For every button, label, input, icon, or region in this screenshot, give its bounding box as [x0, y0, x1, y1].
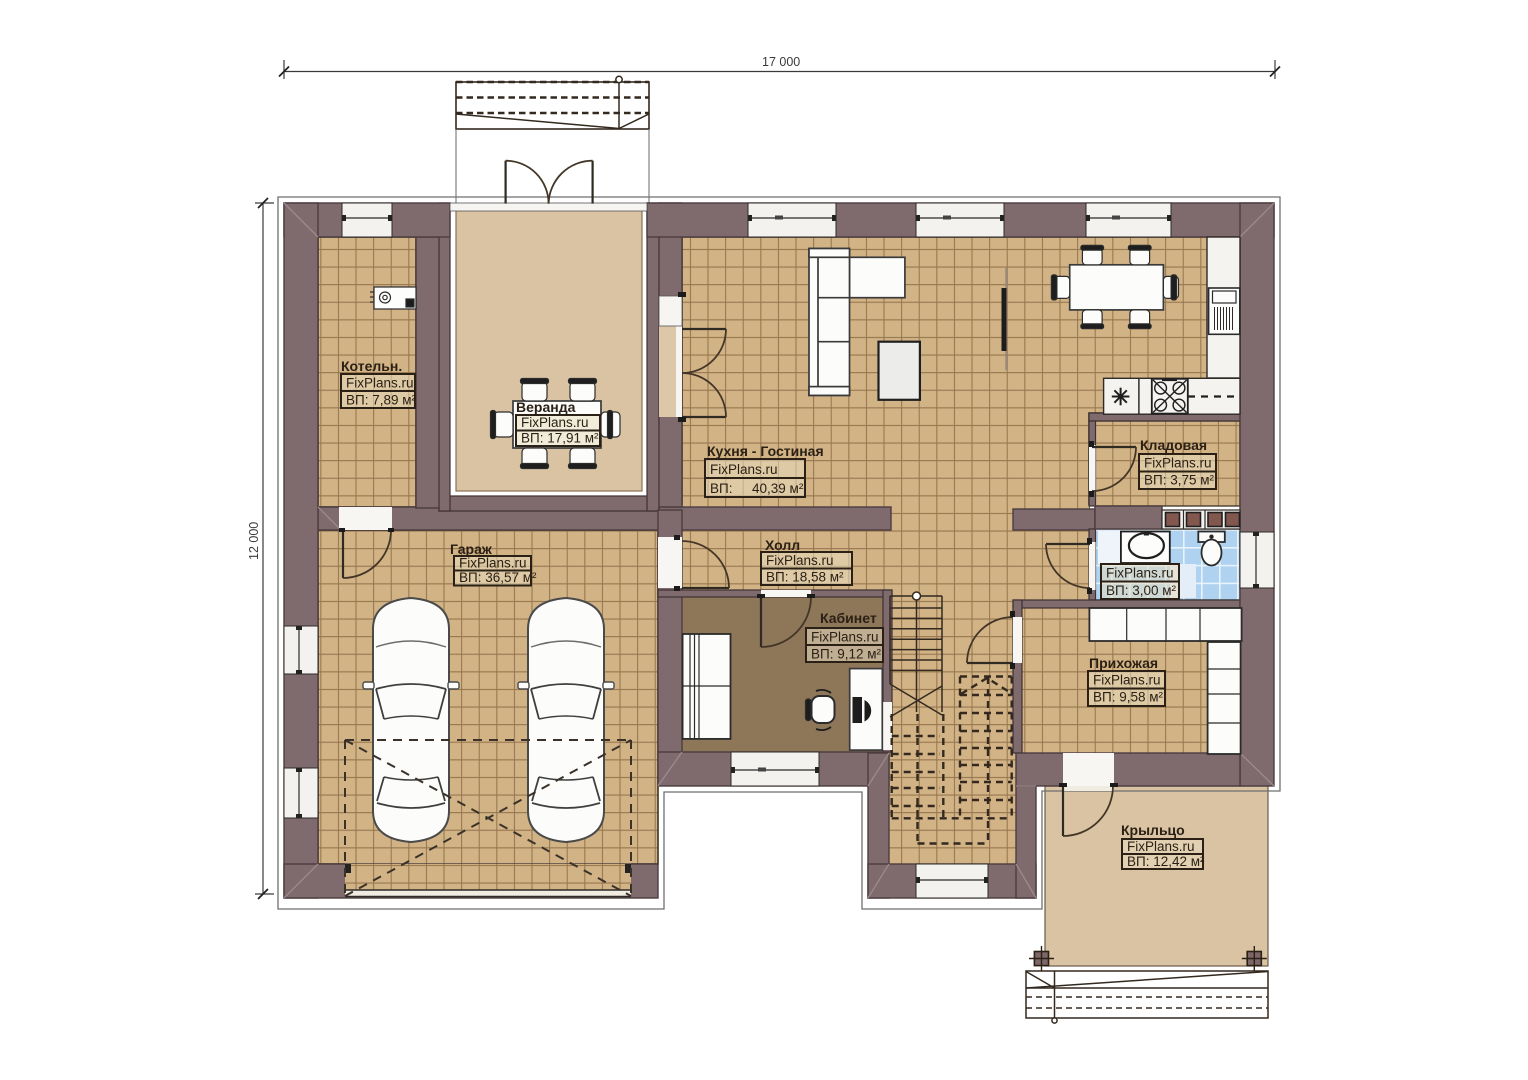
svg-text:Котельн.: Котельн. — [341, 358, 402, 374]
svg-text:FixPlans.ru: FixPlans.ru — [346, 376, 414, 391]
svg-text:Крыльцо: Крыльцо — [1121, 822, 1185, 838]
svg-text:ВП: 3,75 м²: ВП: 3,75 м² — [1144, 473, 1215, 488]
svg-text:ВП: 3,00 м²: ВП: 3,00 м² — [1106, 583, 1177, 598]
svg-text:Холл: Холл — [765, 537, 800, 553]
svg-text:12 000: 12 000 — [247, 522, 261, 560]
svg-text:Кабинет: Кабинет — [820, 610, 877, 626]
svg-text:Кладовая: Кладовая — [1140, 437, 1207, 453]
svg-text:ВП:: ВП: — [710, 481, 732, 496]
svg-text:FixPlans.ru: FixPlans.ru — [1093, 673, 1161, 688]
svg-text:40,39 м²: 40,39 м² — [752, 481, 804, 496]
svg-text:FixPlans.ru: FixPlans.ru — [1106, 566, 1174, 581]
svg-text:ВП: 18,58 м²: ВП: 18,58 м² — [766, 570, 844, 585]
svg-text:FixPlans.ru: FixPlans.ru — [1127, 839, 1195, 854]
svg-text:FixPlans.ru: FixPlans.ru — [459, 556, 527, 571]
svg-text:ВП: 17,91 м²: ВП: 17,91 м² — [521, 431, 599, 446]
svg-text:FixPlans.ru: FixPlans.ru — [766, 553, 834, 568]
svg-text:FixPlans.ru: FixPlans.ru — [811, 630, 879, 645]
svg-text:FixPlans.ru: FixPlans.ru — [521, 415, 589, 430]
svg-text:FixPlans.ru: FixPlans.ru — [710, 462, 778, 477]
svg-text:ВП: 9,58 м²: ВП: 9,58 м² — [1093, 690, 1164, 705]
svg-text:ВП: 36,57 м²: ВП: 36,57 м² — [459, 570, 537, 585]
svg-text:Кухня - Гостиная: Кухня - Гостиная — [707, 443, 824, 459]
svg-text:ВП: 9,12 м²: ВП: 9,12 м² — [811, 647, 882, 662]
svg-text:ВП: 7,89 м²: ВП: 7,89 м² — [346, 393, 417, 408]
svg-text:Прихожая: Прихожая — [1089, 655, 1158, 671]
svg-text:17 000: 17 000 — [762, 55, 800, 69]
svg-text:ВП: 12,42 м²: ВП: 12,42 м² — [1127, 854, 1205, 869]
svg-text:FixPlans.ru: FixPlans.ru — [1144, 456, 1212, 471]
svg-text:Веранда: Веранда — [516, 399, 576, 415]
